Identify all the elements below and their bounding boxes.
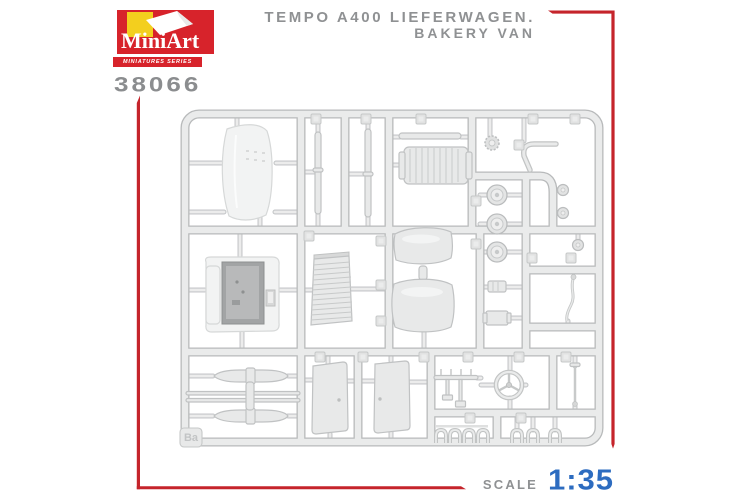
steering-wheel-part — [496, 372, 522, 398]
ribbed-cylinder-part — [399, 133, 472, 184]
scale-value: 1:35 — [548, 464, 614, 497]
van-cab-part — [206, 257, 280, 332]
sprue-tab-label: Ba — [180, 428, 202, 447]
sprue-diagram — [0, 0, 750, 500]
roof-panel-part — [222, 125, 272, 220]
scale-label: SCALE — [483, 477, 538, 492]
curved-panel-parts — [392, 228, 454, 332]
instruction-sheet-page: MiniArt MINIATURES SERIES 38066 TEMPO A4… — [0, 0, 750, 500]
wheel-hub-parts — [487, 185, 584, 263]
louver-panel-part — [311, 252, 352, 325]
scale-block: SCALE 1:35 — [420, 461, 614, 497]
